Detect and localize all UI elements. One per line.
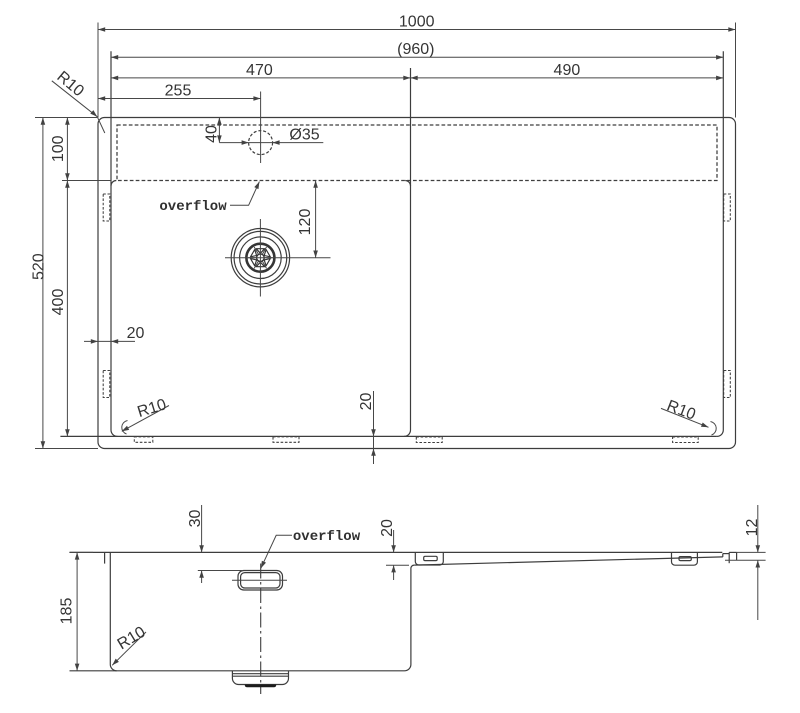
svg-text:(960): (960) xyxy=(397,41,434,58)
svg-text:12: 12 xyxy=(744,519,761,537)
svg-text:40: 40 xyxy=(204,125,221,143)
svg-text:20: 20 xyxy=(379,519,396,537)
svg-text:490: 490 xyxy=(554,62,581,79)
svg-text:20: 20 xyxy=(358,393,375,411)
svg-text:20: 20 xyxy=(127,325,145,342)
svg-text:overflow: overflow xyxy=(293,529,361,545)
svg-text:470: 470 xyxy=(246,62,273,79)
svg-text:overflow: overflow xyxy=(159,199,227,215)
svg-text:30: 30 xyxy=(187,510,204,528)
svg-text:255: 255 xyxy=(165,82,192,99)
svg-text:120: 120 xyxy=(297,209,314,236)
svg-text:100: 100 xyxy=(50,135,67,162)
svg-text:185: 185 xyxy=(59,598,76,625)
svg-text:520: 520 xyxy=(31,253,48,280)
svg-text:400: 400 xyxy=(50,289,67,316)
svg-text:Ø35: Ø35 xyxy=(289,126,319,143)
svg-text:1000: 1000 xyxy=(399,14,435,31)
